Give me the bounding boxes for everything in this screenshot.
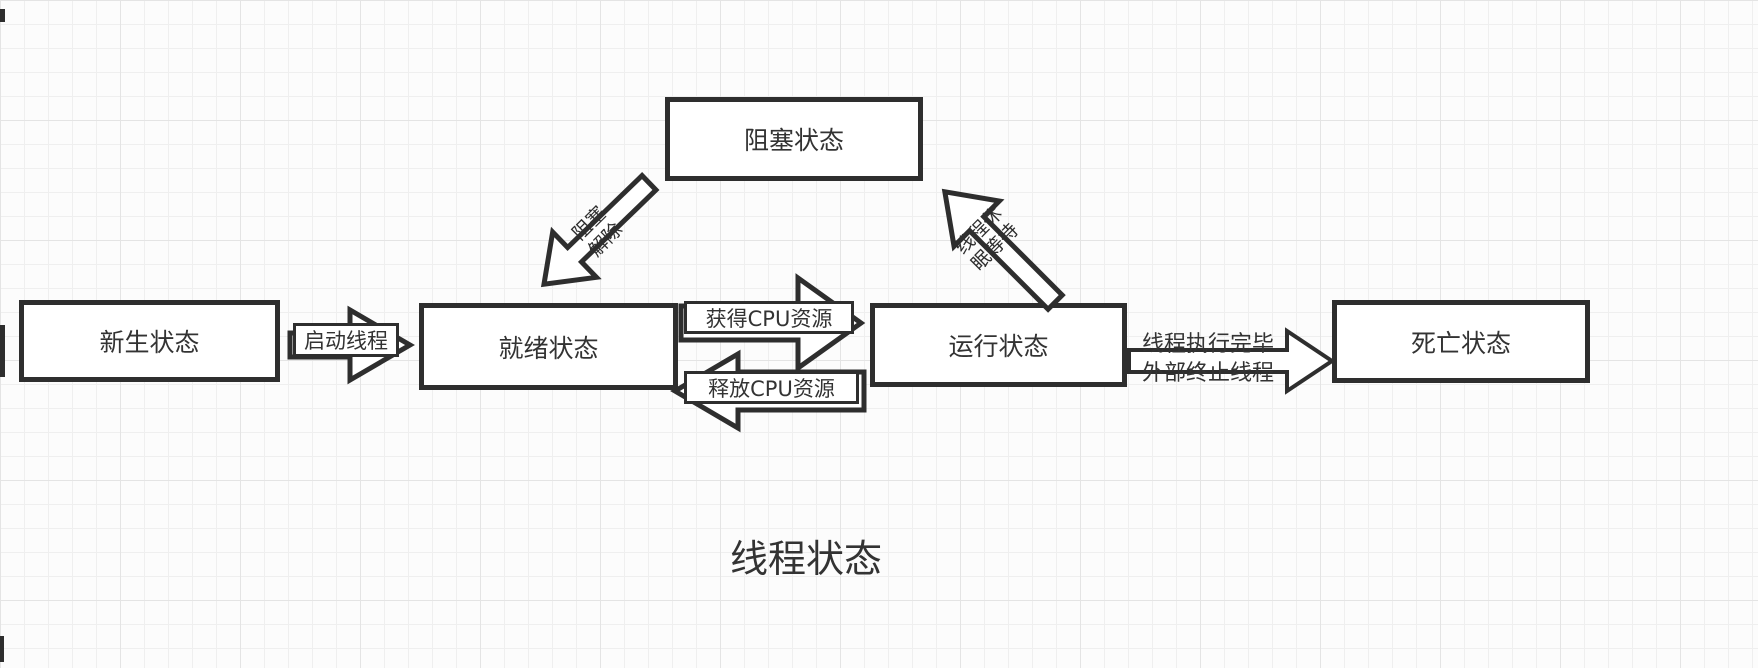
- edge-label-to-dead-line2: 外部终止线程: [1142, 359, 1332, 388]
- canvas-edge-artifact: [0, 325, 5, 377]
- node-ready-state: 就绪状态: [419, 303, 678, 390]
- edge-label-start-thread: 启动线程: [293, 323, 399, 357]
- diagram-title: 线程状态: [700, 528, 912, 583]
- edge-label-release-cpu-text: 释放CPU资源: [708, 373, 835, 403]
- node-ready-state-label: 就绪状态: [498, 329, 598, 365]
- node-blocked-state-label: 阻塞状态: [744, 121, 844, 157]
- diagram-canvas: 新生状态 就绪状态 运行状态 死亡状态 阻塞状态 启动线程 获得CPU资源 释放…: [0, 0, 1758, 668]
- canvas-edge-artifact: [0, 9, 5, 22]
- node-dead-state: 死亡状态: [1332, 300, 1590, 383]
- edge-label-to-dead-line1: 线程执行完毕: [1142, 330, 1332, 359]
- edge-label-release-cpu: 释放CPU资源: [684, 371, 859, 404]
- edge-label-acquire-cpu: 获得CPU资源: [684, 301, 854, 334]
- canvas-edge-artifact: [0, 636, 4, 662]
- edge-label-to-dead: 线程执行完毕 外部终止线程: [1142, 330, 1332, 388]
- node-new-state: 新生状态: [19, 300, 280, 382]
- edge-label-start-thread-text: 启动线程: [304, 325, 388, 355]
- node-new-state-label: 新生状态: [99, 323, 199, 359]
- node-running-state-label: 运行状态: [948, 327, 1048, 363]
- node-dead-state-label: 死亡状态: [1411, 324, 1511, 360]
- node-blocked-state: 阻塞状态: [665, 97, 923, 181]
- edge-label-acquire-cpu-text: 获得CPU资源: [706, 303, 833, 333]
